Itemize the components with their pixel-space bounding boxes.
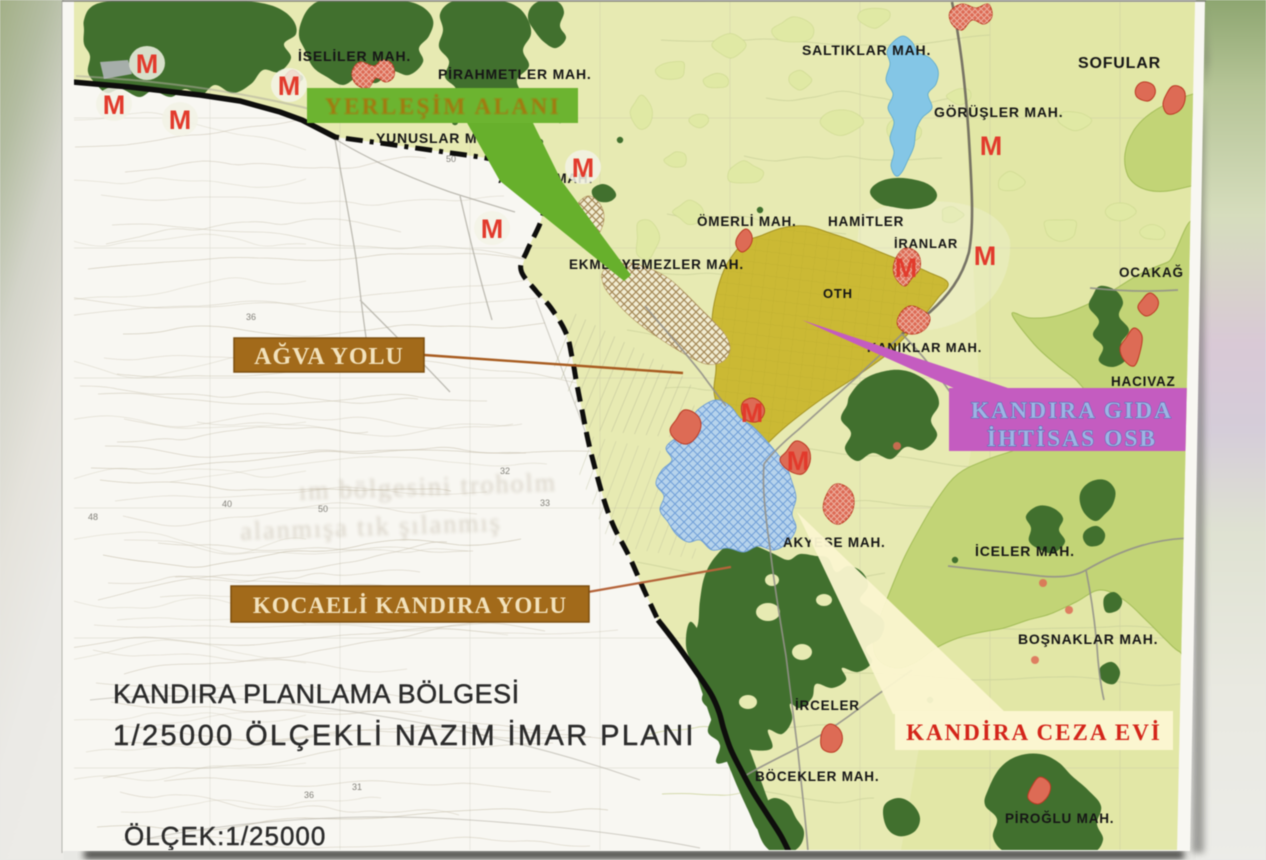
svg-text:İRCELER: İRCELER — [795, 698, 860, 713]
svg-text:40: 40 — [222, 499, 232, 509]
svg-text:İCELER MAH.: İCELER MAH. — [975, 543, 1075, 559]
svg-text:M: M — [741, 398, 764, 428]
svg-text:İRANLAR: İRANLAR — [894, 236, 958, 251]
svg-text:EKMEKYEMEZLER MAH.: EKMEKYEMEZLER MAH. — [569, 257, 744, 272]
svg-text:ÖLÇEK:1/25000: ÖLÇEK:1/25000 — [124, 821, 326, 851]
svg-text:PİROĞLU MAH.: PİROĞLU MAH. — [1005, 811, 1114, 826]
svg-text:KANDIRA PLANLAMA BÖLGESİ: KANDIRA PLANLAMA BÖLGESİ — [113, 678, 520, 709]
svg-text:1/25000 ÖLÇEKLİ NAZIM İMAR PLA: 1/25000 ÖLÇEKLİ NAZIM İMAR PLANI — [113, 719, 696, 752]
svg-text:M: M — [169, 105, 192, 135]
svg-text:YERLEŞİM ALANI: YERLEŞİM ALANI — [325, 94, 561, 119]
svg-text:SALTIKLAR MAH.: SALTIKLAR MAH. — [802, 42, 931, 58]
svg-text:M: M — [787, 446, 810, 476]
svg-text:36: 36 — [304, 790, 314, 800]
svg-text:M: M — [980, 131, 1003, 161]
svg-text:KANDİRA CEZA EVİ: KANDİRA CEZA EVİ — [906, 720, 1162, 745]
svg-text:M: M — [974, 241, 997, 271]
svg-text:KANDIRA GIDA: KANDIRA GIDA — [971, 398, 1173, 424]
svg-text:50: 50 — [318, 504, 328, 514]
svg-text:BÖCEKLER MAH.: BÖCEKLER MAH. — [755, 769, 879, 784]
svg-text:İSELİLER MAH.: İSELİLER MAH. — [298, 48, 411, 64]
svg-text:ÖMERLİ MAH.: ÖMERLİ MAH. — [697, 214, 797, 229]
svg-text:PİRAHMETLER MAH.: PİRAHMETLER MAH. — [438, 66, 592, 82]
svg-text:31: 31 — [352, 782, 362, 792]
svg-text:M: M — [136, 49, 159, 79]
svg-text:AĞVA YOLU: AĞVA YOLU — [254, 343, 404, 370]
svg-text:33: 33 — [540, 498, 550, 508]
svg-text:M: M — [481, 214, 504, 244]
svg-text:AKYESE MAH.: AKYESE MAH. — [783, 535, 886, 550]
svg-text:48: 48 — [88, 512, 98, 522]
svg-text:SOFULAR: SOFULAR — [1078, 55, 1161, 72]
svg-text:OCAKAĞ: OCAKAĞ — [1119, 265, 1184, 280]
svg-text:BOŞNAKLAR MAH.: BOŞNAKLAR MAH. — [1018, 631, 1158, 647]
svg-text:M: M — [103, 90, 126, 120]
svg-text:KOCAELİ KANDIRA YOLU: KOCAELİ KANDIRA YOLU — [253, 593, 567, 618]
svg-text:HAMİTLER: HAMİTLER — [828, 214, 904, 229]
svg-text:GÖRÜŞLER MAH.: GÖRÜŞLER MAH. — [934, 104, 1063, 120]
svg-text:M: M — [895, 253, 918, 283]
svg-text:OTH: OTH — [823, 286, 853, 301]
svg-text:32: 32 — [500, 466, 510, 476]
svg-text:İHTİSAS OSB: İHTİSAS OSB — [987, 426, 1157, 452]
svg-text:36: 36 — [246, 312, 256, 322]
svg-text:M: M — [278, 71, 301, 101]
svg-text:HACIVAZ: HACIVAZ — [1111, 374, 1176, 389]
svg-text:M: M — [572, 153, 595, 183]
